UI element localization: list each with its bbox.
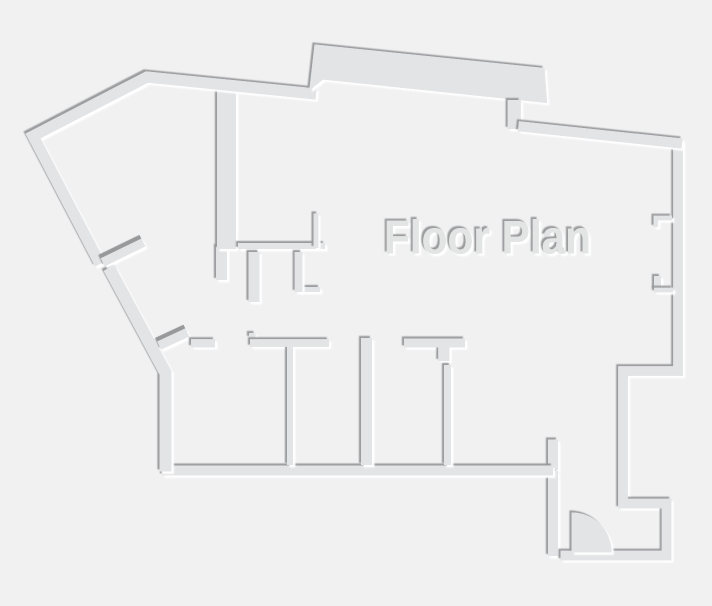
svg-text:Floor Plan: Floor Plan bbox=[384, 211, 591, 264]
